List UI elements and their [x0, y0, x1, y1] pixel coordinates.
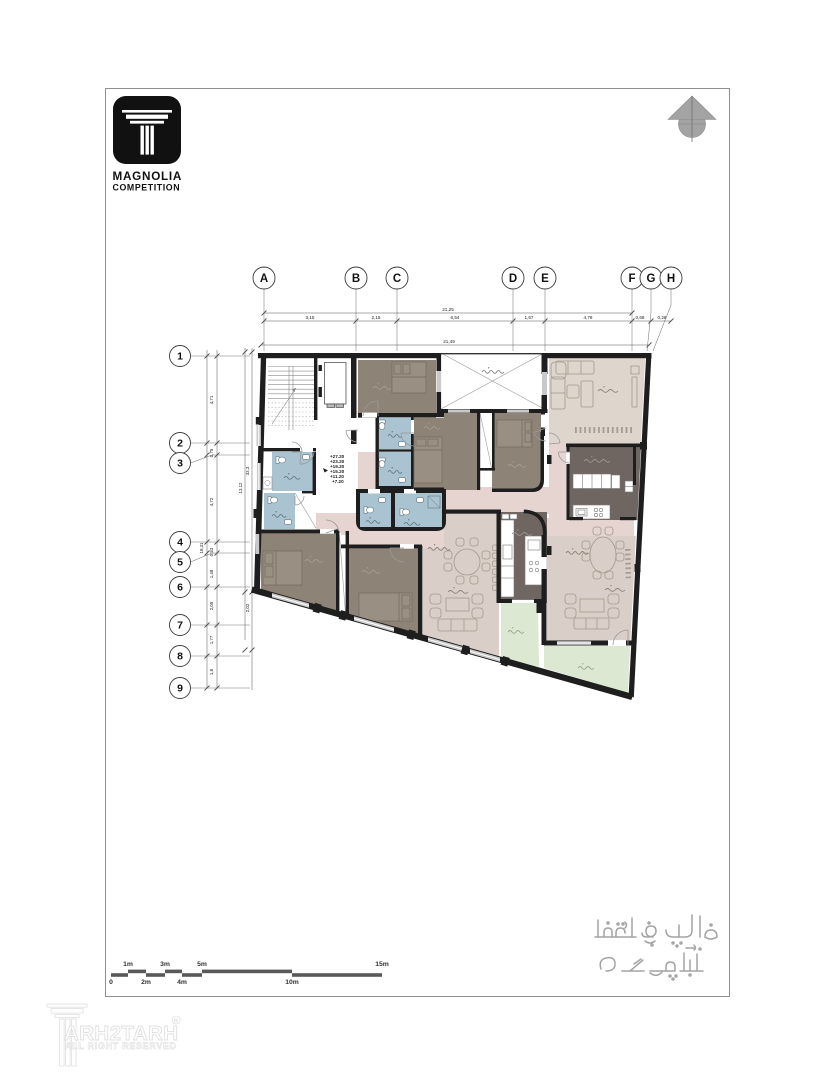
svg-text:ALL RIGHT RESERVED: ALL RIGHT RESERVED — [65, 1041, 177, 1051]
svg-text:18,31: 18,31 — [199, 542, 204, 554]
svg-text:15m: 15m — [375, 961, 389, 968]
svg-text:0,68: 0,68 — [636, 315, 645, 320]
svg-text:1,8: 1,8 — [209, 668, 214, 675]
svg-text:0,28: 0,28 — [658, 315, 667, 320]
svg-text:1,77: 1,77 — [209, 635, 214, 644]
svg-text:0,53: 0,53 — [209, 547, 214, 556]
svg-text:MAGNOLIA: MAGNOLIA — [113, 170, 183, 183]
svg-text:2m: 2m — [141, 979, 151, 986]
svg-text:33,3: 33,3 — [245, 466, 250, 475]
svg-text:0: 0 — [109, 979, 113, 986]
svg-text:8: 8 — [177, 651, 183, 663]
svg-text:A: A — [260, 273, 268, 285]
svg-text:2,15: 2,15 — [372, 315, 381, 320]
svg-text:+7.20: +7.20 — [332, 479, 344, 484]
svg-text:COMPETITION: COMPETITION — [113, 183, 181, 193]
svg-text:4,72: 4,72 — [209, 497, 214, 506]
svg-text:1,48: 1,48 — [209, 569, 214, 578]
svg-text:7: 7 — [177, 620, 183, 632]
svg-text:4,71: 4,71 — [209, 395, 214, 404]
svg-text:21,49: 21,49 — [443, 339, 455, 344]
svg-text:3m: 3m — [160, 961, 170, 968]
svg-text:2: 2 — [177, 438, 183, 450]
svg-text:5: 5 — [177, 557, 183, 569]
svg-text:5m: 5m — [197, 961, 207, 968]
svg-text:R: R — [174, 1018, 178, 1024]
svg-text:G: G — [647, 273, 656, 285]
svg-text:D: D — [509, 273, 517, 285]
svg-text:E: E — [541, 273, 549, 285]
svg-text:1: 1 — [177, 351, 183, 363]
svg-text:9: 9 — [177, 683, 183, 695]
svg-text:0,75: 0,75 — [209, 448, 214, 457]
svg-text:4: 4 — [177, 537, 183, 549]
svg-text:C: C — [393, 273, 401, 285]
svg-text:1,67: 1,67 — [525, 315, 534, 320]
svg-text:B: B — [352, 273, 360, 285]
svg-text:1m: 1m — [123, 961, 133, 968]
svg-text:6: 6 — [177, 582, 183, 594]
svg-text:21,25: 21,25 — [442, 307, 454, 312]
svg-text:2,02: 2,02 — [245, 603, 250, 612]
svg-text:3: 3 — [177, 458, 183, 470]
svg-text:4,78: 4,78 — [584, 315, 593, 320]
svg-text:6,54: 6,54 — [451, 315, 460, 320]
svg-text:H: H — [667, 273, 675, 285]
svg-text:3,15: 3,15 — [306, 315, 315, 320]
svg-text:2,05: 2,05 — [209, 601, 214, 610]
svg-text:13,12: 13,12 — [238, 482, 243, 494]
svg-text:10m: 10m — [285, 979, 299, 986]
svg-text:F: F — [628, 273, 635, 285]
svg-text:4m: 4m — [177, 979, 187, 986]
